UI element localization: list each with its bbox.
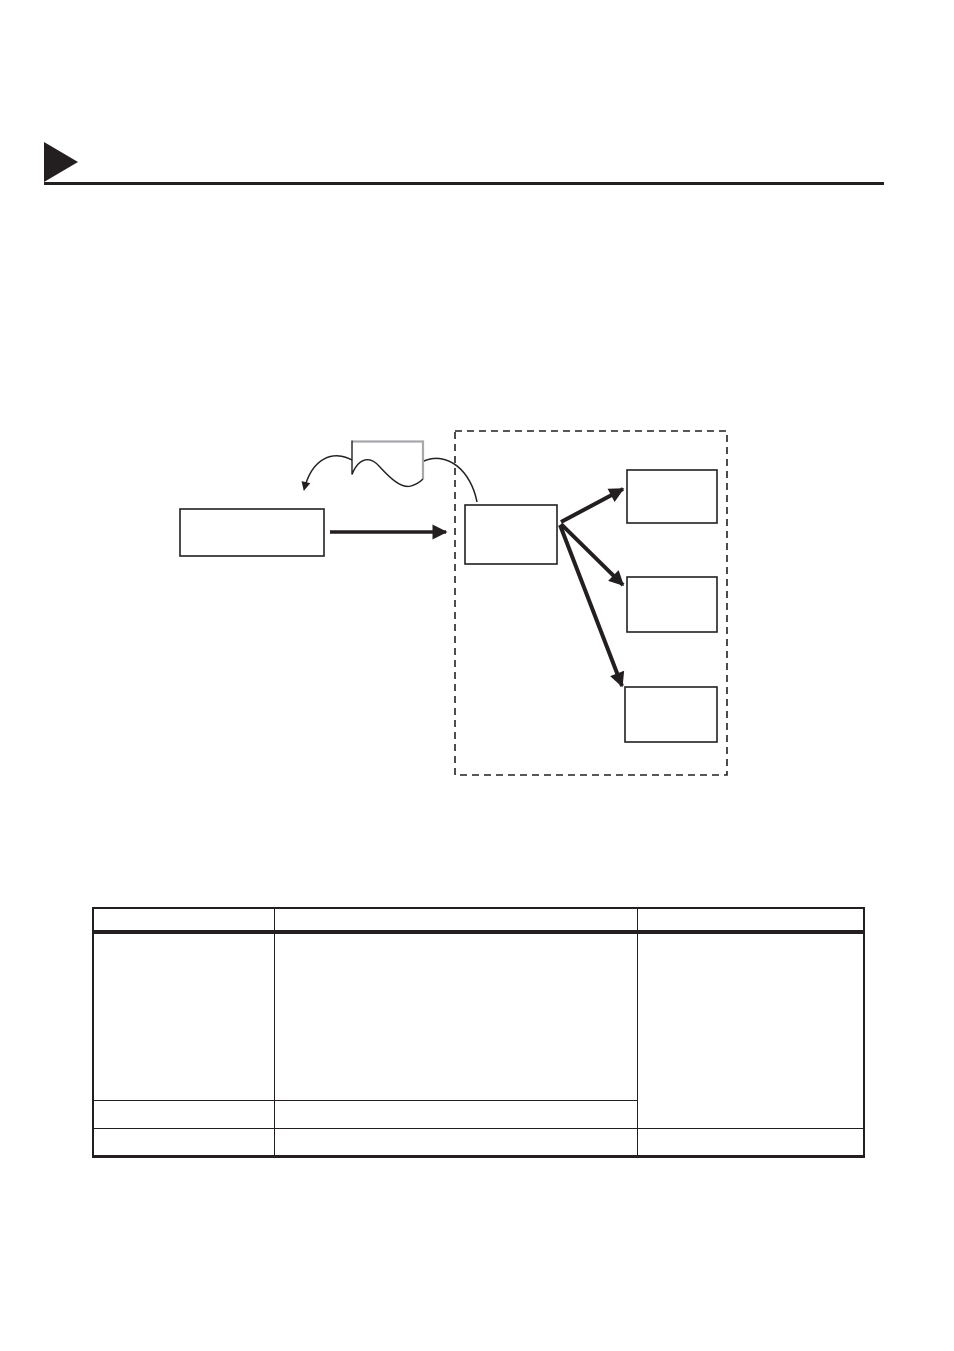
table-header-cell-1 [93, 908, 274, 932]
diagram-destination-box-2 [627, 577, 717, 632]
table-header-row [93, 908, 864, 932]
table-cell-r3c2 [274, 1129, 637, 1157]
diagram-hub-box [465, 505, 557, 564]
diagram-group-outline [455, 431, 727, 775]
document-shape-wave [352, 441, 423, 487]
table-cell-r3c1 [93, 1129, 274, 1157]
section-marker-triangle-icon [44, 142, 78, 182]
table-row-1 [93, 932, 864, 1101]
table-cell-r1c1 [93, 932, 274, 1101]
diagram-curved-arrow-left [304, 456, 352, 490]
document-shape-icon [352, 442, 423, 480]
diagram-fanout-arrow-middle [561, 524, 623, 585]
table-row-3 [93, 1129, 864, 1157]
table-cell-r3c3 [637, 1129, 864, 1157]
document-page [0, 0, 954, 1351]
diagram-destination-box-1 [627, 470, 717, 523]
diagram-fanout-arrow-top [561, 489, 623, 522]
diagram-fanout-arrow-bottom [560, 525, 622, 686]
table-header-cell-3 [637, 908, 864, 932]
diagram-source-box [180, 509, 324, 556]
table-cell-r1c2 [274, 932, 637, 1101]
table-header-cell-2 [274, 908, 637, 932]
table-cell-r1c3-merged [637, 932, 864, 1129]
diagram-destination-box-3 [625, 687, 717, 742]
diagram-curved-connector-right [424, 458, 477, 502]
table-cell-r2c2 [274, 1101, 637, 1129]
table-cell-r2c1 [93, 1101, 274, 1129]
data-table [92, 907, 865, 1158]
